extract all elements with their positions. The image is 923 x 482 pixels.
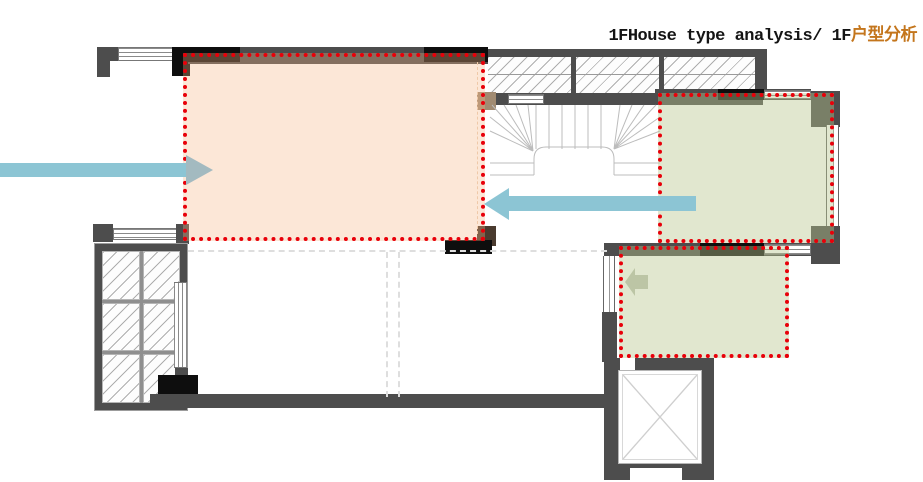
wall-opening <box>630 468 682 480</box>
green-highlight-zone-upper-right <box>658 93 834 243</box>
mini-arrow-bar <box>634 275 648 289</box>
window <box>174 282 187 368</box>
glass-pane <box>102 303 140 352</box>
glass-pane <box>102 354 140 403</box>
entry-flow-arrow-head-icon <box>186 155 213 185</box>
glazing-bar <box>488 74 755 75</box>
wall-segment <box>97 47 110 77</box>
page-title-en: 1FHouse type analysis/ 1F <box>608 27 851 46</box>
circulation-arrow-shaft <box>508 196 696 211</box>
glazed-panel <box>488 57 755 93</box>
entry-flow-arrow-shaft <box>0 163 187 177</box>
mullion <box>571 57 576 93</box>
window <box>118 47 174 61</box>
staircase <box>488 103 663 203</box>
window <box>603 256 615 313</box>
window <box>113 228 177 240</box>
wall-segment <box>150 394 618 408</box>
mullion <box>659 57 664 93</box>
green-highlight-zone-lower-right <box>619 246 789 358</box>
mini-arrow-left-icon <box>625 268 649 296</box>
elevator-cab <box>618 370 702 464</box>
pink-highlight-zone <box>183 53 485 241</box>
page-title-zh: 户型分析 <box>851 27 917 46</box>
elevator-cross-icon <box>623 375 697 459</box>
wall-segment <box>488 49 766 57</box>
wall-segment <box>93 224 113 242</box>
page-title: 1FHouse type analysis/ 1F户型分析 <box>608 20 917 46</box>
circulation-arrow-head-icon <box>484 188 509 220</box>
dashed-line <box>398 252 400 397</box>
wall-opening <box>620 358 635 370</box>
elevator-cab-outline <box>622 374 698 460</box>
wall-segment <box>602 312 617 362</box>
floor-plan-page: { "title": { "prefix": "1FHouse type ana… <box>0 0 923 482</box>
glass-pane <box>102 251 140 300</box>
dashed-line <box>386 252 388 397</box>
